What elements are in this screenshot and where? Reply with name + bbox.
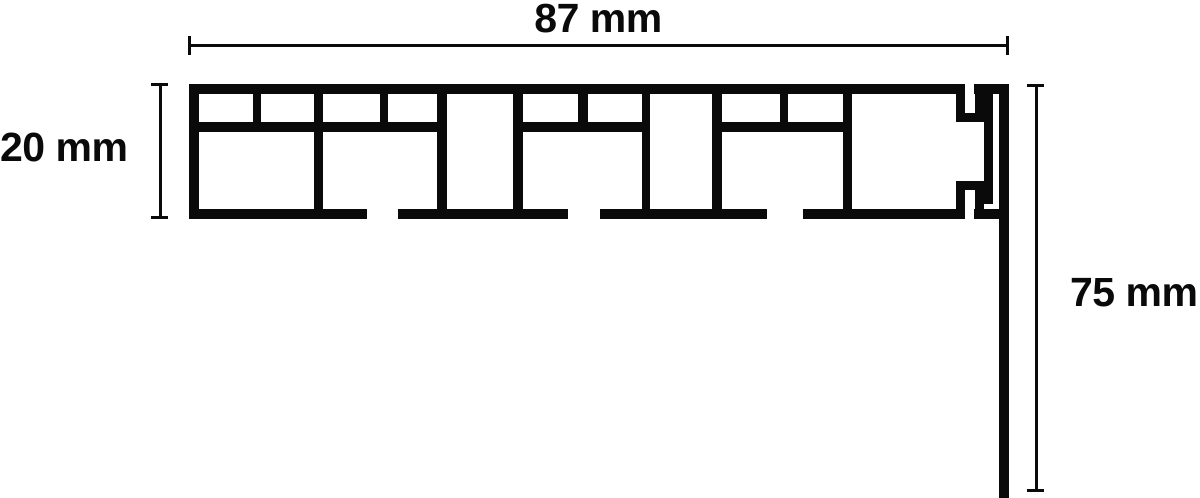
divider [437, 84, 447, 219]
divider [314, 84, 323, 219]
bottom-edge-segment [600, 209, 767, 219]
divider [712, 84, 722, 219]
dimension-line-vertical [1035, 85, 1038, 491]
dimension-line-vertical [159, 84, 162, 219]
dimension-tick [1027, 84, 1044, 87]
hook-wall [975, 94, 984, 122]
dimension-tick [1006, 36, 1009, 55]
dimension-tick [1027, 489, 1044, 492]
bottom-edge-segment [189, 209, 367, 219]
divider [843, 84, 852, 219]
left-wall [189, 84, 199, 219]
bottom-end-cap [974, 209, 1009, 219]
dimension-tick [151, 216, 168, 219]
top-divider [380, 84, 388, 132]
divider [642, 84, 650, 219]
top-divider [578, 84, 588, 132]
right-wall-drop-fin [999, 84, 1009, 498]
hook-wall [975, 181, 984, 209]
inner-channel-bar [984, 94, 993, 204]
bottom-edge-segment [398, 209, 568, 219]
diagram-canvas: 87 mm 20 mm 75 mm [0, 0, 1200, 498]
profile-end-clip-hooks [956, 93, 993, 209]
top-divider [780, 84, 788, 132]
dimension-line-horizontal [189, 44, 1008, 47]
rail-profile-drawing [0, 0, 1200, 498]
dimension-tick [188, 36, 191, 55]
width-dimension-label: 87 mm [448, 0, 748, 39]
drop-dimension-label: 75 mm [1070, 272, 1197, 313]
dimension-tick [151, 83, 168, 86]
bottom-edge-segment [803, 209, 965, 219]
profile-outer-walls [189, 84, 1009, 498]
height-dimension-label: 20 mm [0, 127, 125, 168]
top-divider [253, 84, 261, 132]
divider [513, 84, 523, 219]
